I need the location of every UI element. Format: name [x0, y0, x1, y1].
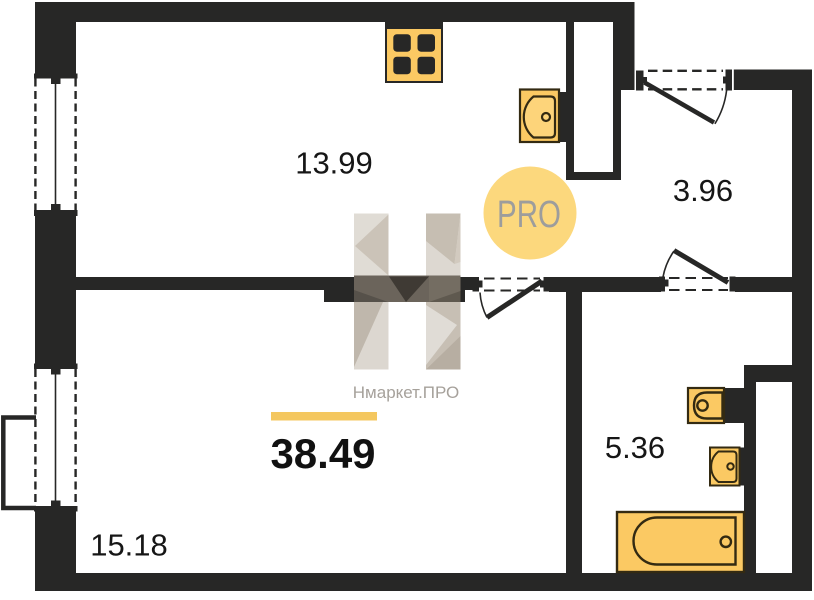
svg-text:5.36: 5.36: [605, 430, 665, 465]
svg-text:3.96: 3.96: [673, 173, 733, 208]
svg-text:38.49: 38.49: [270, 430, 375, 477]
svg-text:Нмаркет.ПРО: Нмаркет.ПРО: [353, 383, 459, 402]
svg-text:15.18: 15.18: [90, 528, 168, 563]
svg-text:13.99: 13.99: [295, 146, 373, 181]
svg-text:PRO: PRO: [497, 194, 561, 236]
